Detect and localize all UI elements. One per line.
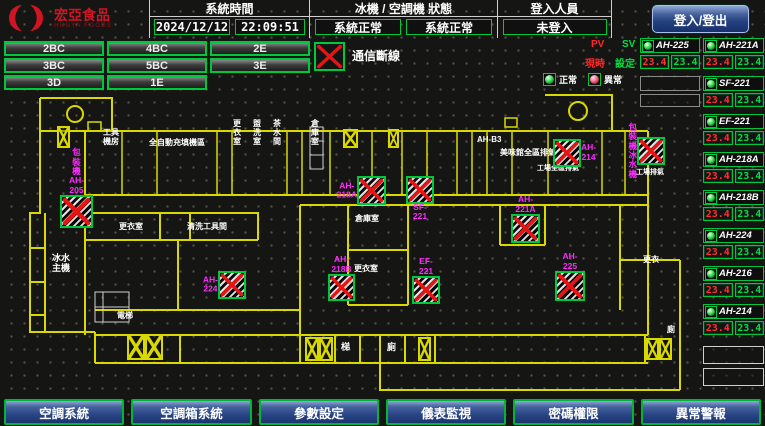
equipment-tag: 包裝機 冰水機 (628, 123, 637, 179)
menu-button-1[interactable]: 空調系統 (4, 399, 124, 425)
unit-name-ah-218a[interactable]: AH-218A (703, 152, 764, 167)
system-date-value: 2024/12/12 (154, 19, 230, 35)
comm-loss-mark: AH-224 (218, 271, 246, 299)
equipment-tag: SF-221 (413, 203, 427, 222)
unit-name-sf-221[interactable]: SF-221 (703, 76, 764, 91)
bottom-menu: 空調系統空調箱系統參數設定儀表監視密碼權限異常警報 (0, 399, 765, 425)
comm-loss-mark: AH-221A (511, 214, 540, 243)
unit-sv-value: 23.4 (735, 283, 765, 297)
unit-ah-224: AH-22423.423.4 (703, 228, 764, 259)
comm-loss-mark: AH-218A (357, 176, 386, 205)
equipment-tag: AH-218A (337, 181, 357, 200)
equipment-tag: EF-221 (419, 257, 433, 276)
floor-button-5bc[interactable]: 5BC (107, 58, 207, 73)
abnormal-led-icon (588, 73, 601, 86)
comm-loss-mark: SF-221 (406, 176, 434, 204)
unit-pv-value: 23.4 (703, 93, 733, 107)
empty-unit-slot (640, 76, 700, 91)
room-label: 電梯 (117, 312, 133, 321)
unit-status-led-icon (705, 40, 717, 52)
system-time-value: 22:09:51 (235, 19, 305, 35)
room-label: 倉 庫 室 (311, 120, 319, 146)
stair-x-box (646, 338, 659, 360)
machine-status-section: 冰機 / 空調機 狀態 系統正常 系統正常 (310, 0, 498, 38)
room-label: 更 衣 室 (233, 120, 241, 146)
unit-sv-value: 23.4 (735, 321, 765, 335)
room-label: 更衣室 (119, 223, 143, 232)
company-logo: 宏亞食品 HUNYA FOODS (8, 3, 112, 33)
room-label: 梯 (341, 343, 350, 353)
stair-x-box (145, 334, 163, 360)
logo-subtext: HUNYA FOODS (54, 22, 112, 29)
empty-unit-slot (703, 368, 764, 386)
equipment-tag: AH-214 (581, 143, 596, 162)
unit-ah-218a: AH-218A23.423.4 (703, 152, 764, 183)
login-user-value: 未登入 (503, 19, 607, 35)
header: 宏亞食品 HUNYA FOODS 系統時間 2024/12/12 22:09:5… (0, 0, 765, 38)
menu-button-4[interactable]: 儀表監視 (386, 399, 506, 425)
unit-status-led-icon (642, 40, 654, 52)
login-label: 登入人員 (498, 0, 611, 17)
room-label: 廁 (387, 343, 396, 353)
room-label: 盥 洗 室 (253, 120, 261, 146)
equipment-tag: AH-225 (562, 252, 577, 271)
floor-button-2bc[interactable]: 2BC (4, 41, 104, 56)
unit-name-ef-221[interactable]: EF-221 (703, 114, 764, 129)
equipment-tag: AH-218B (331, 255, 351, 274)
stair-x-box (305, 337, 319, 361)
unit-sv-value: 23.4 (735, 207, 765, 221)
unit-ah-218b: AH-218B23.423.4 (703, 190, 764, 221)
room-label: 全自動充填機區 (149, 139, 205, 148)
comm-loss-mark: AH-214 (553, 139, 581, 167)
comm-loss-mark: EF-221 (412, 276, 440, 304)
unit-pv-value: 23.4 (703, 283, 733, 297)
stair-x-box (127, 334, 145, 360)
unit-status-led-icon (705, 306, 717, 318)
floor-button-4bc[interactable]: 4BC (107, 41, 207, 56)
abnormal-legend-label: 異常 (604, 73, 622, 86)
unit-ah-214: AH-21423.423.4 (703, 304, 764, 335)
floor-button-3bc[interactable]: 3BC (4, 58, 104, 73)
normal-led-icon (543, 73, 556, 86)
unit-pv-value: 23.4 (640, 55, 669, 69)
comm-loss-mark: 包裝機 冰水機 (637, 137, 665, 165)
room-label: AH-B3 (477, 136, 501, 145)
comm-loss-mark: AH-225 (555, 271, 585, 301)
unit-ef-221: EF-22123.423.4 (703, 114, 764, 145)
unit-status-led-icon (705, 116, 717, 128)
stair-x-box (343, 129, 358, 148)
setpoint-legend-label: 設定 (615, 55, 635, 70)
unit-pv-value: 23.4 (703, 169, 733, 183)
sv-legend-label: SV (622, 39, 635, 50)
unit-status-led-icon (705, 230, 717, 242)
room-label: 冰水 主機 (52, 254, 70, 274)
chiller-status-value: 系統正常 (315, 19, 401, 35)
unit-status-led-icon (705, 154, 717, 166)
unit-ah-225: AH-22523.423.4 (640, 38, 700, 69)
pv-legend-label: PV (591, 39, 604, 50)
room-label: 茶 水 間 (273, 120, 281, 146)
login-section: 登入人員 未登入 (498, 0, 612, 38)
unit-list-right: AH-221A23.423.4SF-22123.423.4EF-22123.42… (703, 38, 764, 386)
current-legend-label: 現時 (585, 55, 605, 70)
logo-section: 宏亞食品 HUNYA FOODS (0, 0, 150, 38)
unit-status-led-icon (705, 78, 717, 90)
normal-legend-label: 正常 (559, 73, 577, 86)
unit-sf-221: SF-22123.423.4 (703, 76, 764, 107)
unit-name-ah-214[interactable]: AH-214 (703, 304, 764, 319)
unit-name-ah-224[interactable]: AH-224 (703, 228, 764, 243)
empty-unit-slot (640, 94, 700, 107)
menu-button-2[interactable]: 空調箱系統 (131, 399, 251, 425)
normal-legend: 正常 (543, 73, 577, 86)
login-logout-button[interactable]: 登入/登出 (652, 5, 749, 33)
unit-pv-value: 23.4 (703, 55, 733, 69)
stair-x-box (319, 337, 333, 361)
unit-name-ah-225[interactable]: AH-225 (640, 38, 700, 53)
unit-sv-value: 23.4 (735, 55, 765, 69)
unit-list-left: AH-22523.423.4 (640, 38, 700, 114)
stair-x-box (418, 337, 431, 361)
room-label: 廁 (667, 326, 675, 335)
unit-name-ah-216[interactable]: AH-216 (703, 266, 764, 281)
floor-button-3d[interactable]: 3D (4, 75, 104, 90)
unit-pv-value: 23.4 (703, 131, 733, 145)
comm-loss-mark: 包裝機 AH-205 (60, 195, 93, 228)
comm-loss-legend-label: 通信斷線 (352, 47, 400, 64)
unit-sv-value: 23.4 (735, 245, 765, 259)
machine-status-label: 冰機 / 空調機 狀態 (310, 0, 497, 17)
menu-button-5[interactable]: 密碼權限 (513, 399, 633, 425)
comm-loss-x-icon (314, 42, 345, 71)
unit-sv-value: 23.4 (735, 93, 765, 107)
stair-x-box (388, 129, 399, 148)
stair-x-box (659, 338, 672, 360)
menu-button-6[interactable]: 異常警報 (641, 399, 761, 425)
logo-text: 宏亞食品 (54, 8, 112, 22)
unit-ah-216: AH-21623.423.4 (703, 266, 764, 297)
unit-ah-221a: AH-221A23.423.4 (703, 38, 764, 69)
equipment-tag: AH-224 (203, 276, 218, 295)
unit-sv-value: 23.4 (671, 55, 700, 69)
unit-pv-value: 23.4 (703, 245, 733, 259)
room-label: 工場排氣 (636, 169, 666, 177)
room-label: 清洗工具間 (187, 223, 227, 232)
room-label: 更衣室 (354, 265, 378, 274)
stair-x-box (57, 126, 70, 148)
system-time-section: 系統時間 2024/12/12 22:09:51 (150, 0, 310, 38)
floor-buttons: 2BC4BC2E3BC5BC3E3D1E (4, 41, 310, 90)
hvac-monitor-screen: 工具 機房全自動充填機區更 衣 室盥 洗 室茶 水 間倉 庫 室AH-B3美味館… (0, 0, 765, 426)
comm-loss-legend (314, 42, 345, 71)
floor-button-2e[interactable]: 2E (210, 41, 310, 56)
empty-unit-slot (703, 346, 764, 364)
floor-button-3e[interactable]: 3E (210, 58, 310, 73)
room-label: 更衣 (643, 256, 659, 265)
unit-name-ah-218b[interactable]: AH-218B (703, 190, 764, 205)
equipment-tag: 包裝機 AH-205 (69, 148, 84, 195)
hunya-logo-icon (8, 3, 48, 33)
floor-button-1e[interactable]: 1E (107, 75, 207, 90)
unit-name-ah-221a[interactable]: AH-221A (703, 38, 764, 53)
ac-status-value: 系統正常 (406, 19, 492, 35)
unit-pv-value: 23.4 (703, 321, 733, 335)
unit-sv-value: 23.4 (735, 169, 765, 183)
system-time-label: 系統時間 (150, 0, 309, 17)
equipment-tag: AH-221A (515, 195, 535, 214)
abnormal-legend: 異常 (588, 73, 622, 86)
unit-pv-value: 23.4 (703, 207, 733, 221)
room-label: 倉庫室 (355, 215, 379, 224)
unit-status-led-icon (705, 268, 717, 280)
room-label: 工具 機房 (103, 129, 119, 147)
unit-sv-value: 23.4 (735, 131, 765, 145)
comm-loss-mark: AH-218B (328, 274, 355, 301)
unit-status-led-icon (705, 192, 717, 204)
menu-button-3[interactable]: 參數設定 (259, 399, 379, 425)
